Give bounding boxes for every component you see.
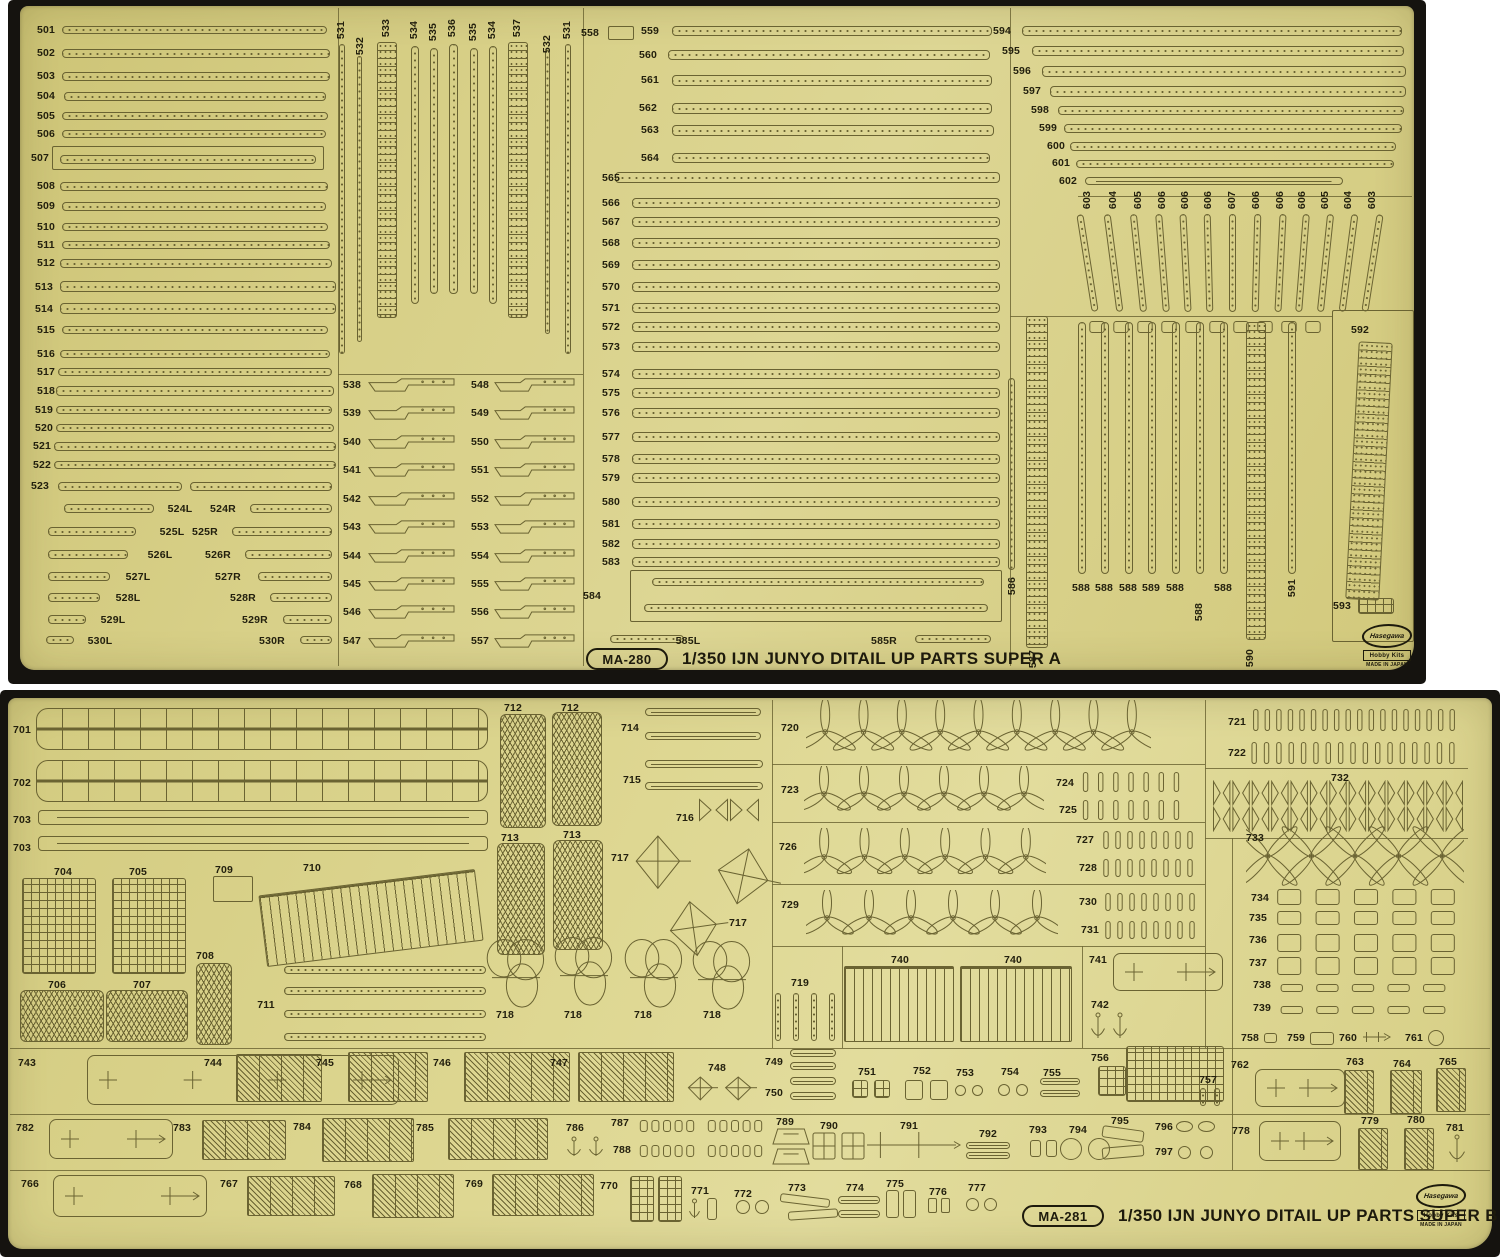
hobby-kits-badge: Hobby Kits <box>1363 650 1411 661</box>
brand-logo-b: Hasegawa Hobby Kits MADE IN JAPAN <box>1416 1184 1466 1228</box>
sheet-b-code-badge: MA-281 <box>1022 1205 1104 1227</box>
made-in-japan-text: MADE IN JAPAN <box>1366 662 1408 668</box>
etched-sheet-ma-281 <box>8 698 1492 1249</box>
brand-logo-a: Hasegawa Hobby Kits MADE IN JAPAN <box>1362 624 1412 668</box>
etched-sheet-ma-280 <box>20 6 1414 670</box>
hasegawa-logo-icon: Hasegawa <box>1360 624 1413 648</box>
sheet-a-titlebar: MA-280 1/350 IJN JUNYO DITAIL UP PARTS S… <box>586 648 1061 670</box>
made-in-japan-text: MADE IN JAPAN <box>1420 1222 1462 1228</box>
hobby-kits-badge: Hobby Kits <box>1417 1210 1465 1221</box>
sheet-a-title: 1/350 IJN JUNYO DITAIL UP PARTS SUPER A <box>682 649 1061 669</box>
hasegawa-logo-icon: Hasegawa <box>1414 1184 1467 1208</box>
product-photo: 5015025035045055065075085095105115125135… <box>0 0 1500 1257</box>
sheet-a-code-badge: MA-280 <box>586 648 668 670</box>
